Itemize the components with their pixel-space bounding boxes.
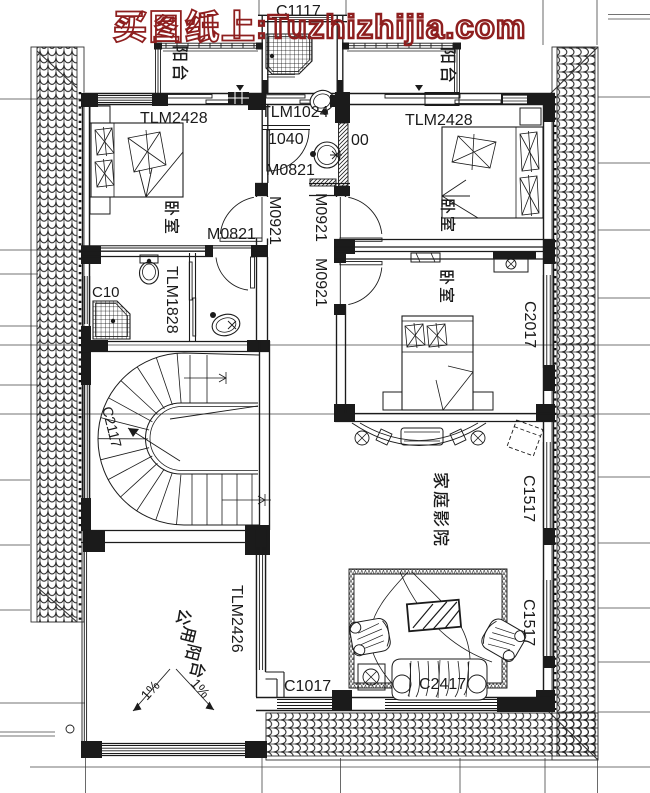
svg-text:M0921: M0921 xyxy=(312,193,329,242)
svg-text:1040: 1040 xyxy=(268,131,304,148)
svg-text:TLM1828: TLM1828 xyxy=(163,266,180,334)
svg-text::Tuzhizhijia.com: :Tuzhizhijia.com xyxy=(256,8,526,45)
svg-text:TLM1024: TLM1024 xyxy=(261,104,329,121)
svg-text:M0821: M0821 xyxy=(266,162,315,179)
svg-text:M0921: M0921 xyxy=(312,258,329,307)
svg-text:M0921: M0921 xyxy=(266,196,283,245)
svg-text:C2417: C2417 xyxy=(419,676,466,693)
svg-text:TLM2426: TLM2426 xyxy=(228,585,245,653)
svg-text:TLM2428: TLM2428 xyxy=(140,110,208,127)
svg-text:C1017: C1017 xyxy=(284,678,331,695)
svg-text:M0821: M0821 xyxy=(207,226,256,243)
svg-text:C1517: C1517 xyxy=(520,475,537,522)
svg-text:C10: C10 xyxy=(92,284,120,301)
svg-text:C1517: C1517 xyxy=(520,599,537,646)
svg-text:C2017: C2017 xyxy=(521,301,538,348)
svg-text:TLM2428: TLM2428 xyxy=(405,112,473,129)
svg-text:00: 00 xyxy=(351,132,369,149)
